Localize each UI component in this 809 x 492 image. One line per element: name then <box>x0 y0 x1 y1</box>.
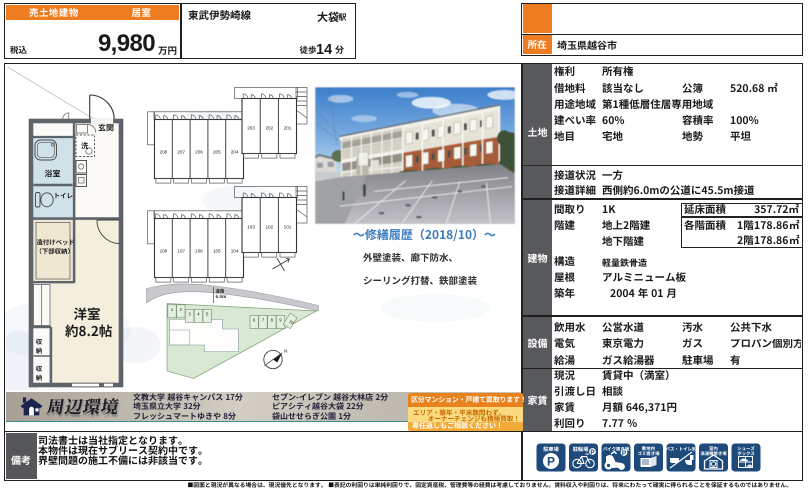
svg-text:103: 103 <box>247 225 255 230</box>
svg-text:駐車場: 駐車場 <box>543 446 559 453</box>
svg-text:造付けベッド: 造付けベッド <box>36 238 74 247</box>
svg-text:P: P <box>622 450 627 457</box>
svg-text:106: 106 <box>195 249 203 254</box>
svg-text:108: 108 <box>159 249 167 254</box>
svg-text:浴室: 浴室 <box>44 169 60 180</box>
svg-text:ゴミ置き場: ゴミ置き場 <box>638 451 661 457</box>
svg-text:収納: 収納 <box>34 364 43 382</box>
svg-text:洗濯機置き場: 洗濯機置き場 <box>700 451 727 457</box>
svg-text:105: 105 <box>212 249 220 254</box>
svg-text:207: 207 <box>177 150 185 155</box>
svg-text:バス・トイレ別: バス・トイレ別 <box>666 446 697 452</box>
svg-text:201: 201 <box>283 126 291 131</box>
svg-text:204: 204 <box>230 150 238 155</box>
svg-text:205: 205 <box>212 150 220 155</box>
svg-text:107: 107 <box>177 249 185 254</box>
svg-text:6.0m: 6.0m <box>215 294 226 300</box>
svg-text:206: 206 <box>195 150 203 155</box>
svg-text:洗: 洗 <box>81 141 89 152</box>
svg-text:P: P <box>590 449 595 456</box>
svg-text:玄関: 玄関 <box>98 123 114 134</box>
svg-text:203: 203 <box>247 126 255 131</box>
svg-text:トイレ: トイレ <box>53 190 73 200</box>
svg-text:101: 101 <box>283 225 291 230</box>
svg-text:N: N <box>284 349 288 355</box>
svg-text:（下部収納）: （下部収納） <box>35 247 73 256</box>
svg-text:約8.2帖: 約8.2帖 <box>65 320 113 340</box>
svg-text:収納: 収納 <box>34 337 43 355</box>
svg-text:208: 208 <box>159 150 167 155</box>
svg-text:P: P <box>547 454 555 468</box>
svg-text:駐輪場: 駐輪場 <box>573 446 589 453</box>
svg-text:102: 102 <box>265 225 273 230</box>
svg-text:202: 202 <box>265 126 273 131</box>
svg-text:104: 104 <box>230 249 238 254</box>
